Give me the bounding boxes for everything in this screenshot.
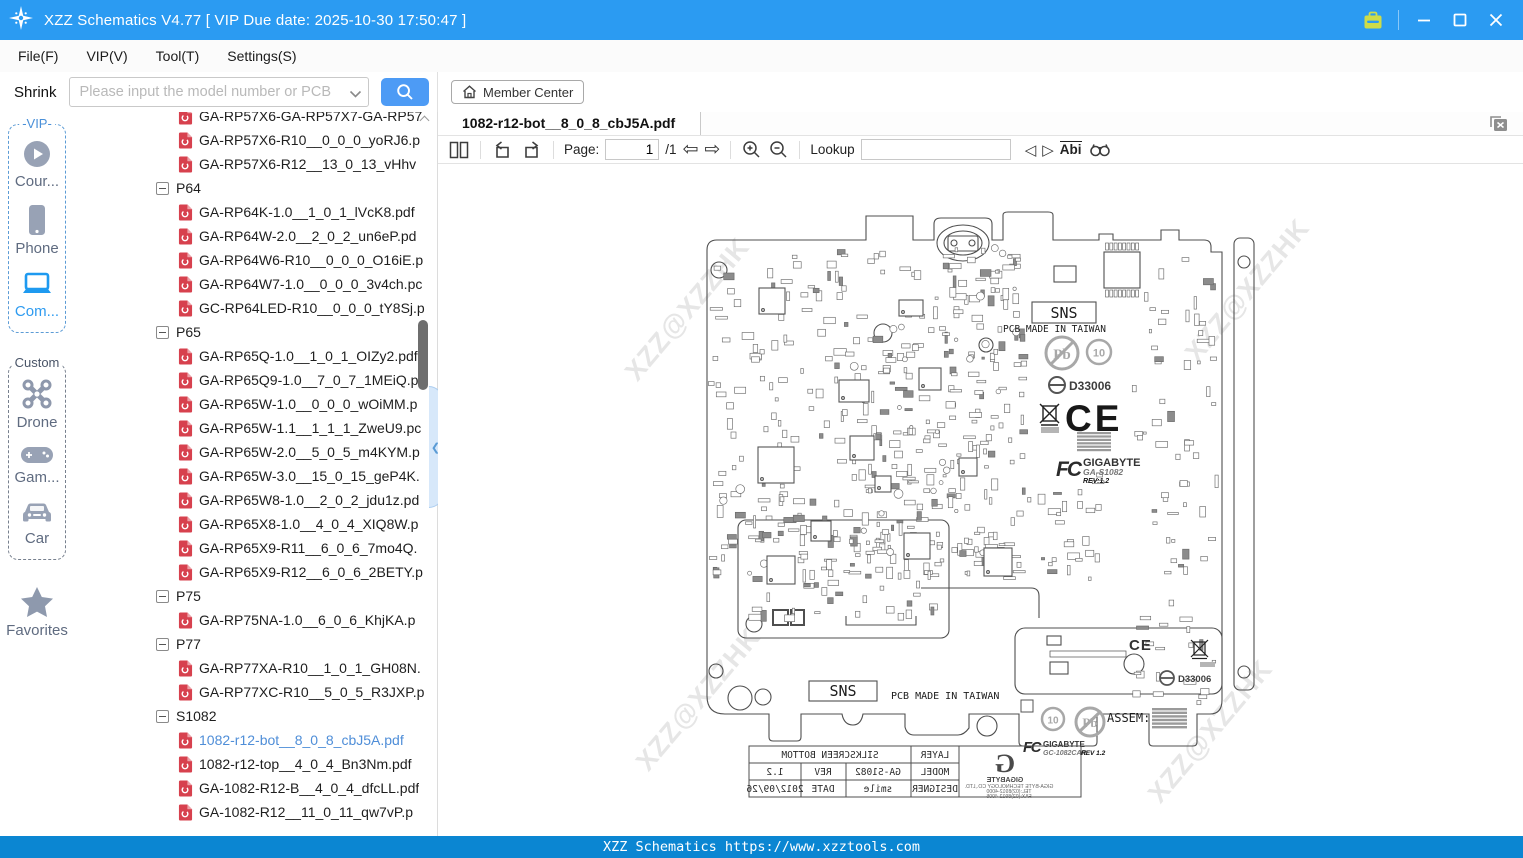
page-total: /1 xyxy=(665,142,676,157)
collapse-toggle-icon[interactable] xyxy=(156,710,169,723)
pdf-file-icon xyxy=(178,276,193,293)
tree-item-label: GA-RP65X8-1.0__4_0_4_XIQ8W.p xyxy=(199,516,418,532)
tree-item-label: GA-RP64W-2.0__2_0_2_un6eP.pd xyxy=(199,228,416,244)
rotate-right-icon[interactable] xyxy=(520,139,543,160)
pdf-viewer: 1082-r12-bot__8_0_8_cbJ5A.pdf xyxy=(437,112,1523,836)
tree-item[interactable]: GA-1082-R12-B__4_0_4_dfcLL.pdf xyxy=(74,776,437,800)
license-briefcase-icon[interactable] xyxy=(1362,9,1384,31)
svg-text:PCB MADE IN TAIWAN: PCB MADE IN TAIWAN xyxy=(891,691,999,702)
svg-text:2012/09/26: 2012/09/26 xyxy=(746,784,803,795)
tree-item-label: S1082 xyxy=(176,708,216,724)
tree-item-label: GA-RP65X9-R12__6_0_6_2BETY.p xyxy=(199,564,423,580)
pdf-file-icon xyxy=(178,204,193,221)
svg-text:DESIGNER: DESIGNER xyxy=(912,784,958,795)
svg-text:PCB MADE IN TAIWAN: PCB MADE IN TAIWAN xyxy=(1003,324,1106,335)
tree-item-label: GA-RP65W-1.0__0_0_0_wOiMM.p xyxy=(199,396,417,412)
pdf-file-icon xyxy=(178,804,193,821)
car-icon xyxy=(20,500,54,526)
svg-text:D33006: D33006 xyxy=(1178,674,1211,685)
tree-group[interactable]: P77 xyxy=(74,632,437,656)
tree-item-label: GA-RP65W-2.0__5_0_5_m4KYM.p xyxy=(199,444,420,460)
member-center-label: Member Center xyxy=(483,85,573,100)
prev-page-icon[interactable]: ⇦ xyxy=(683,140,699,159)
menu-settings[interactable]: Settings(S) xyxy=(227,48,310,64)
tree-item-label: GA-RP57X6-R12__13_0_13_vHhv xyxy=(199,156,416,172)
tree-item-label: GA-RP65W-1.1__1_1_1_ZweU9.pc xyxy=(199,420,421,436)
svg-text:FC: FC xyxy=(1023,739,1043,756)
pdf-file-icon xyxy=(178,684,193,701)
pdf-file-icon xyxy=(178,252,193,269)
svg-text:DATE: DATE xyxy=(811,784,834,795)
tree-item[interactable]: GA-RP65W8-1.0__2_0_2_jdu1z.pd xyxy=(74,488,437,512)
tree-item-label: GA-1082-R12__11_0_11_qw7vP.p xyxy=(199,804,413,820)
main-area: -VIP- Cour... Phone xyxy=(0,112,1523,836)
tree-item[interactable]: GC-RP64LED-R10__0_0_0_tY8Sj.p xyxy=(74,296,437,320)
svg-text:XZZ@XZZHK: XZZ@XZZHK xyxy=(1179,213,1315,367)
pdf-file-icon xyxy=(178,516,193,533)
maximize-button[interactable] xyxy=(1449,9,1471,31)
pdf-file-icon xyxy=(178,732,193,749)
tree-item-label: GA-RP65W8-1.0__2_0_2_jdu1z.pd xyxy=(199,492,419,508)
tree-item[interactable]: 1082-r12-bot__8_0_8_cbJ5A.pdf xyxy=(74,728,437,752)
tree-item-label: GA-RP75NA-1.0__6_0_6_KhjKA.p xyxy=(199,612,415,628)
tree-item[interactable]: GA-RP65X8-1.0__4_0_4_XIQ8W.p xyxy=(74,512,437,536)
status-text: XZZ Schematics https://www.xzztools.com xyxy=(603,839,920,855)
pdf-file-icon xyxy=(178,396,193,413)
phone-icon xyxy=(24,204,50,236)
tree-item[interactable]: GA-RP65X9-R11__6_0_6_7mo4Q. xyxy=(74,536,437,560)
weee-bin-icon xyxy=(1040,404,1059,425)
tree-item-label: GA-RP77XC-R10__5_0_5_R3JXP.p xyxy=(199,684,424,700)
pdf-file-icon xyxy=(178,112,193,125)
tree-item[interactable]: GA-RP65W-2.0__5_0_5_m4KYM.p xyxy=(74,440,437,464)
tree-item[interactable]: GA-RP65Q-1.0__1_0_1_OIZy2.pdf xyxy=(74,344,437,368)
svg-text:REV 1.2: REV 1.2 xyxy=(1081,750,1106,757)
tab-bar: 1082-r12-bot__8_0_8_cbJ5A.pdf xyxy=(438,112,1523,136)
svg-text:LAYER: LAYER xyxy=(920,750,949,761)
tree-item[interactable]: GA-RP77XA-R10__1_0_1_GH08N. xyxy=(74,656,437,680)
svg-text:GA-S1082: GA-S1082 xyxy=(1083,467,1123,477)
svg-text:GA-S1082: GA-S1082 xyxy=(855,767,901,778)
svg-text:SILKSCREEN BOTTOM: SILKSCREEN BOTTOM xyxy=(781,750,879,761)
pdf-file-icon xyxy=(178,300,193,317)
svg-text:GIGABYTE: GIGABYTE xyxy=(1043,740,1085,749)
title-bar: XZZ Schematics V4.77 [ VIP Due date: 202… xyxy=(0,0,1523,40)
sidebar-item-drone[interactable]: Drone xyxy=(17,378,58,431)
svg-text:D33006: D33006 xyxy=(1069,379,1111,393)
star-icon xyxy=(20,586,54,618)
tree-group[interactable]: S1082 xyxy=(74,704,437,728)
home-icon xyxy=(462,85,477,99)
tree-item-label: GA-RP57X6-GA-RP57X7-GA-RP57 xyxy=(199,112,422,124)
pdf-file-icon xyxy=(178,348,193,365)
tree-item-label: P64 xyxy=(176,180,201,196)
tree-item[interactable]: GA-RP75NA-1.0__6_0_6_KhjKA.p xyxy=(74,608,437,632)
titlebar-divider xyxy=(1398,10,1399,30)
next-page-icon[interactable]: ⇨ xyxy=(704,140,720,159)
svg-text:REV:1.2: REV:1.2 xyxy=(1083,478,1109,485)
tree-item-label: 1082-r12-top__4_0_4_Bn3Nm.pdf xyxy=(199,756,412,772)
shrink-button[interactable]: Shrink xyxy=(6,80,65,105)
tree-item-label: GA-RP65Q-1.0__1_0_1_OIZy2.pdf xyxy=(199,348,418,364)
pdf-file-icon xyxy=(178,444,193,461)
custom-group: Custom Drone xyxy=(8,363,66,560)
sidebar-item-favorites[interactable]: Favorites xyxy=(6,586,68,639)
tree-item-label: GA-RP77XA-R10__1_0_1_GH08N. xyxy=(199,660,421,676)
pdf-file-icon xyxy=(178,492,193,509)
find-next-icon[interactable]: ▷ xyxy=(1042,141,1054,159)
zoom-in-icon[interactable] xyxy=(741,139,762,160)
tree-item[interactable]: GA-1082-R12__11_0_11_qw7vP.p xyxy=(74,800,437,824)
menu-bar: File(F) VIP(V) Tool(T) Settings(S) xyxy=(0,40,1523,72)
label-stripes-bottom xyxy=(1152,708,1187,728)
search-row: Shrink Member Cent xyxy=(0,72,1523,112)
svg-text:XZZ@XZZHK: XZZ@XZZHK xyxy=(619,232,755,386)
menu-tool[interactable]: Tool(T) xyxy=(156,48,214,64)
search-icon xyxy=(395,82,415,102)
tree-item[interactable]: GA-RP65Q9-1.0__7_0_7_1MEiQ.p xyxy=(74,368,437,392)
tree-item[interactable]: GA-RP77XC-R10__5_0_5_R3JXP.p xyxy=(74,680,437,704)
sidebar-item-course[interactable]: Cour... xyxy=(15,139,59,190)
tree-item[interactable]: GA-RP64W-2.0__2_0_2_un6eP.pd xyxy=(74,224,437,248)
d33006-ul-icon xyxy=(1049,377,1065,393)
laptop-icon xyxy=(20,271,54,299)
tree-scrollbar-thumb[interactable] xyxy=(418,320,428,390)
pdf-file-icon xyxy=(178,612,193,629)
rotate-left-icon[interactable] xyxy=(491,139,514,160)
fcc-icon: FC xyxy=(1056,458,1083,481)
svg-text:10: 10 xyxy=(1047,716,1059,727)
collapse-toggle-icon[interactable] xyxy=(156,638,169,651)
tree-item-label: P75 xyxy=(176,588,201,604)
svg-text:Pb: Pb xyxy=(1053,347,1071,363)
scroll-up-arrow-icon[interactable] xyxy=(419,114,429,124)
tree-item[interactable]: GA-RP57X6-R10__0_0_0_yoRJ6.p xyxy=(74,128,437,152)
tree-item-label: GA-RP65W-3.0__15_0_15_geP4K. xyxy=(199,468,420,484)
sidebar-item-game[interactable]: Gam... xyxy=(14,445,59,486)
svg-text:CE: CE xyxy=(1129,637,1152,654)
chevron-down-icon[interactable] xyxy=(349,86,362,104)
svg-text:XZZ@XZZHK: XZZ@XZZHK xyxy=(630,622,766,776)
pcb-silkscreen-drawing: XZZ@XZZHK XZZ@XZZHK XZZ@XZZHK XZZ@XZZHK xyxy=(438,164,1523,836)
tree-item-label: GA-RP64W7-1.0__0_0_0_3v4ch.pc xyxy=(199,276,422,292)
member-center-button[interactable]: Member Center xyxy=(451,80,584,104)
tree-item[interactable]: GA-RP57X6-R12__13_0_13_vHhv xyxy=(74,152,437,176)
tab-active-document[interactable]: 1082-r12-bot__8_0_8_cbJ5A.pdf xyxy=(438,112,701,135)
tree-item-label: GC-RP64LED-R10__0_0_0_tY8Sj.p xyxy=(199,300,425,316)
pdf-file-icon xyxy=(178,540,193,557)
tree-item[interactable]: GA-RP64W7-1.0__0_0_0_3v4ch.pc xyxy=(74,272,437,296)
svg-text:MODEL: MODEL xyxy=(920,767,949,778)
tab-title: 1082-r12-bot__8_0_8_cbJ5A.pdf xyxy=(462,115,675,131)
tree-item[interactable]: GA-RP65W-1.0__0_0_0_wOiMM.p xyxy=(74,392,437,416)
pdf-file-icon xyxy=(178,420,193,437)
zoom-out-icon[interactable] xyxy=(768,139,789,160)
svg-text:FAX:(02)8912-4005: FAX:(02)8912-4005 xyxy=(986,794,1031,800)
tree-item[interactable]: GA-RP65W-1.1__1_1_1_ZweU9.pc xyxy=(74,416,437,440)
vip-group-label: -VIP- xyxy=(19,116,55,131)
tree-group[interactable]: P65 xyxy=(74,320,437,344)
search-button[interactable] xyxy=(381,78,429,106)
tree-item[interactable]: 1082-r12-top__4_0_4_Bn3Nm.pdf xyxy=(74,752,437,776)
custom-group-label: Custom xyxy=(12,355,63,370)
status-bar: XZZ Schematics https://www.xzztools.com xyxy=(0,836,1523,858)
svg-text:10: 10 xyxy=(1093,348,1105,360)
tree-item-label: GA-RP64W6-R10__0_0_0_O16iE.p xyxy=(199,252,423,268)
svg-text:SNS: SNS xyxy=(829,682,856,700)
vip-group: -VIP- Cour... Phone xyxy=(8,124,66,333)
gigabyte-logo-mirrored: G GIGABYTE GIGA-BYTE TECHNOLOGY CO.,LTD.… xyxy=(965,749,1054,800)
play-circle-icon xyxy=(22,139,52,169)
app-logo-icon xyxy=(8,5,34,36)
tree-group[interactable]: P75 xyxy=(74,584,437,608)
tree-item-label: GA-RP65X9-R11__6_0_6_7mo4Q. xyxy=(199,540,417,556)
tree-item-label: P77 xyxy=(176,636,201,652)
pdf-toolbar: Page: /1 ⇦ ⇨ Lookup ◁ ▷ Abi xyxy=(438,136,1523,164)
sidebar-item-phone[interactable]: Phone xyxy=(15,204,58,257)
gamepad-icon xyxy=(20,445,54,465)
tree-item[interactable]: GA-RP65W-3.0__15_0_15_geP4K. xyxy=(74,464,437,488)
sidebar-item-computer[interactable]: Com... xyxy=(15,271,59,320)
tree-item-label: GA-1082-R12-B__4_0_4_dfcLL.pdf xyxy=(199,780,419,796)
menu-file[interactable]: File(F) xyxy=(18,48,72,64)
close-all-tabs-icon[interactable] xyxy=(1489,115,1509,138)
page-label: Page: xyxy=(564,142,599,157)
lookup-input[interactable] xyxy=(861,139,1011,160)
svg-text:REV: REV xyxy=(814,767,831,778)
lookup-label: Lookup xyxy=(810,142,854,157)
tree-group[interactable]: P64 xyxy=(74,176,437,200)
two-page-view-icon[interactable] xyxy=(448,140,470,160)
sidebar-item-car[interactable]: Car xyxy=(20,500,54,547)
binoculars-search-icon[interactable] xyxy=(1088,140,1112,160)
tree-item-label: GA-RP57X6-R10__0_0_0_yoRJ6.p xyxy=(199,132,420,148)
tree-item-label: P65 xyxy=(176,324,201,340)
svg-text:GIGABYTE: GIGABYTE xyxy=(986,777,1023,784)
page-number-input[interactable] xyxy=(605,139,659,160)
pdf-file-icon xyxy=(178,156,193,173)
minimize-button[interactable] xyxy=(1413,9,1435,31)
tree-item[interactable]: GA-RP64K-1.0__1_0_1_lVcK8.pdf xyxy=(74,200,437,224)
tree-item[interactable]: GA-RP65X9-R12__6_0_6_2BETY.p xyxy=(74,560,437,584)
tree-item-label: GA-RP64K-1.0__1_0_1_lVcK8.pdf xyxy=(199,204,415,220)
svg-text:SNS: SNS xyxy=(1050,304,1077,322)
svg-text:1.2: 1.2 xyxy=(766,767,783,778)
pdf-file-icon xyxy=(178,468,193,485)
collapse-toggle-icon[interactable] xyxy=(156,326,169,339)
tree-item-label: GA-RP65Q9-1.0__7_0_7_1MEiQ.p xyxy=(199,372,418,388)
text-select-tool-icon[interactable]: Abi xyxy=(1060,141,1082,158)
pdf-file-icon xyxy=(178,132,193,149)
pdf-file-icon xyxy=(178,756,193,773)
svg-text:smile: smile xyxy=(863,784,892,795)
app-window: XZZ Schematics V4.77 [ VIP Due date: 202… xyxy=(0,0,1523,858)
pdf-file-icon xyxy=(178,372,193,389)
pdf-file-icon xyxy=(178,660,193,677)
tree-item[interactable]: GA-RP64W6-R10__0_0_0_O16iE.p xyxy=(74,248,437,272)
svg-text:Pb: Pb xyxy=(1082,715,1097,730)
collapse-toggle-icon[interactable] xyxy=(156,590,169,603)
close-button[interactable] xyxy=(1485,9,1507,31)
pdf-page-canvas[interactable]: XZZ@XZZHK XZZ@XZZHK XZZ@XZZHK XZZ@XZZHK xyxy=(438,164,1523,836)
pdf-file-icon xyxy=(178,780,193,797)
window-title: XZZ Schematics V4.77 [ VIP Due date: 202… xyxy=(44,12,466,29)
pdf-file-icon xyxy=(178,228,193,245)
category-rail: -VIP- Cour... Phone xyxy=(0,112,74,836)
find-previous-icon[interactable]: ◁ xyxy=(1025,141,1037,159)
pdf-file-icon xyxy=(178,564,193,581)
tree-item[interactable]: GA-RP57X6-GA-RP57X7-GA-RP57 xyxy=(74,112,437,128)
drone-icon xyxy=(21,378,53,410)
menu-vip[interactable]: VIP(V) xyxy=(86,48,141,64)
collapse-toggle-icon[interactable] xyxy=(156,182,169,195)
svg-text:ASSEM:: ASSEM: xyxy=(1107,711,1150,725)
tree-item-label: 1082-r12-bot__8_0_8_cbJ5A.pdf xyxy=(199,732,404,748)
model-search-input[interactable] xyxy=(69,77,369,107)
svg-text:G: G xyxy=(995,749,1015,778)
file-tree: GA-RP57X6-GA-RP57X7-GA-RP57GA-RP57X6-R10… xyxy=(74,112,437,836)
